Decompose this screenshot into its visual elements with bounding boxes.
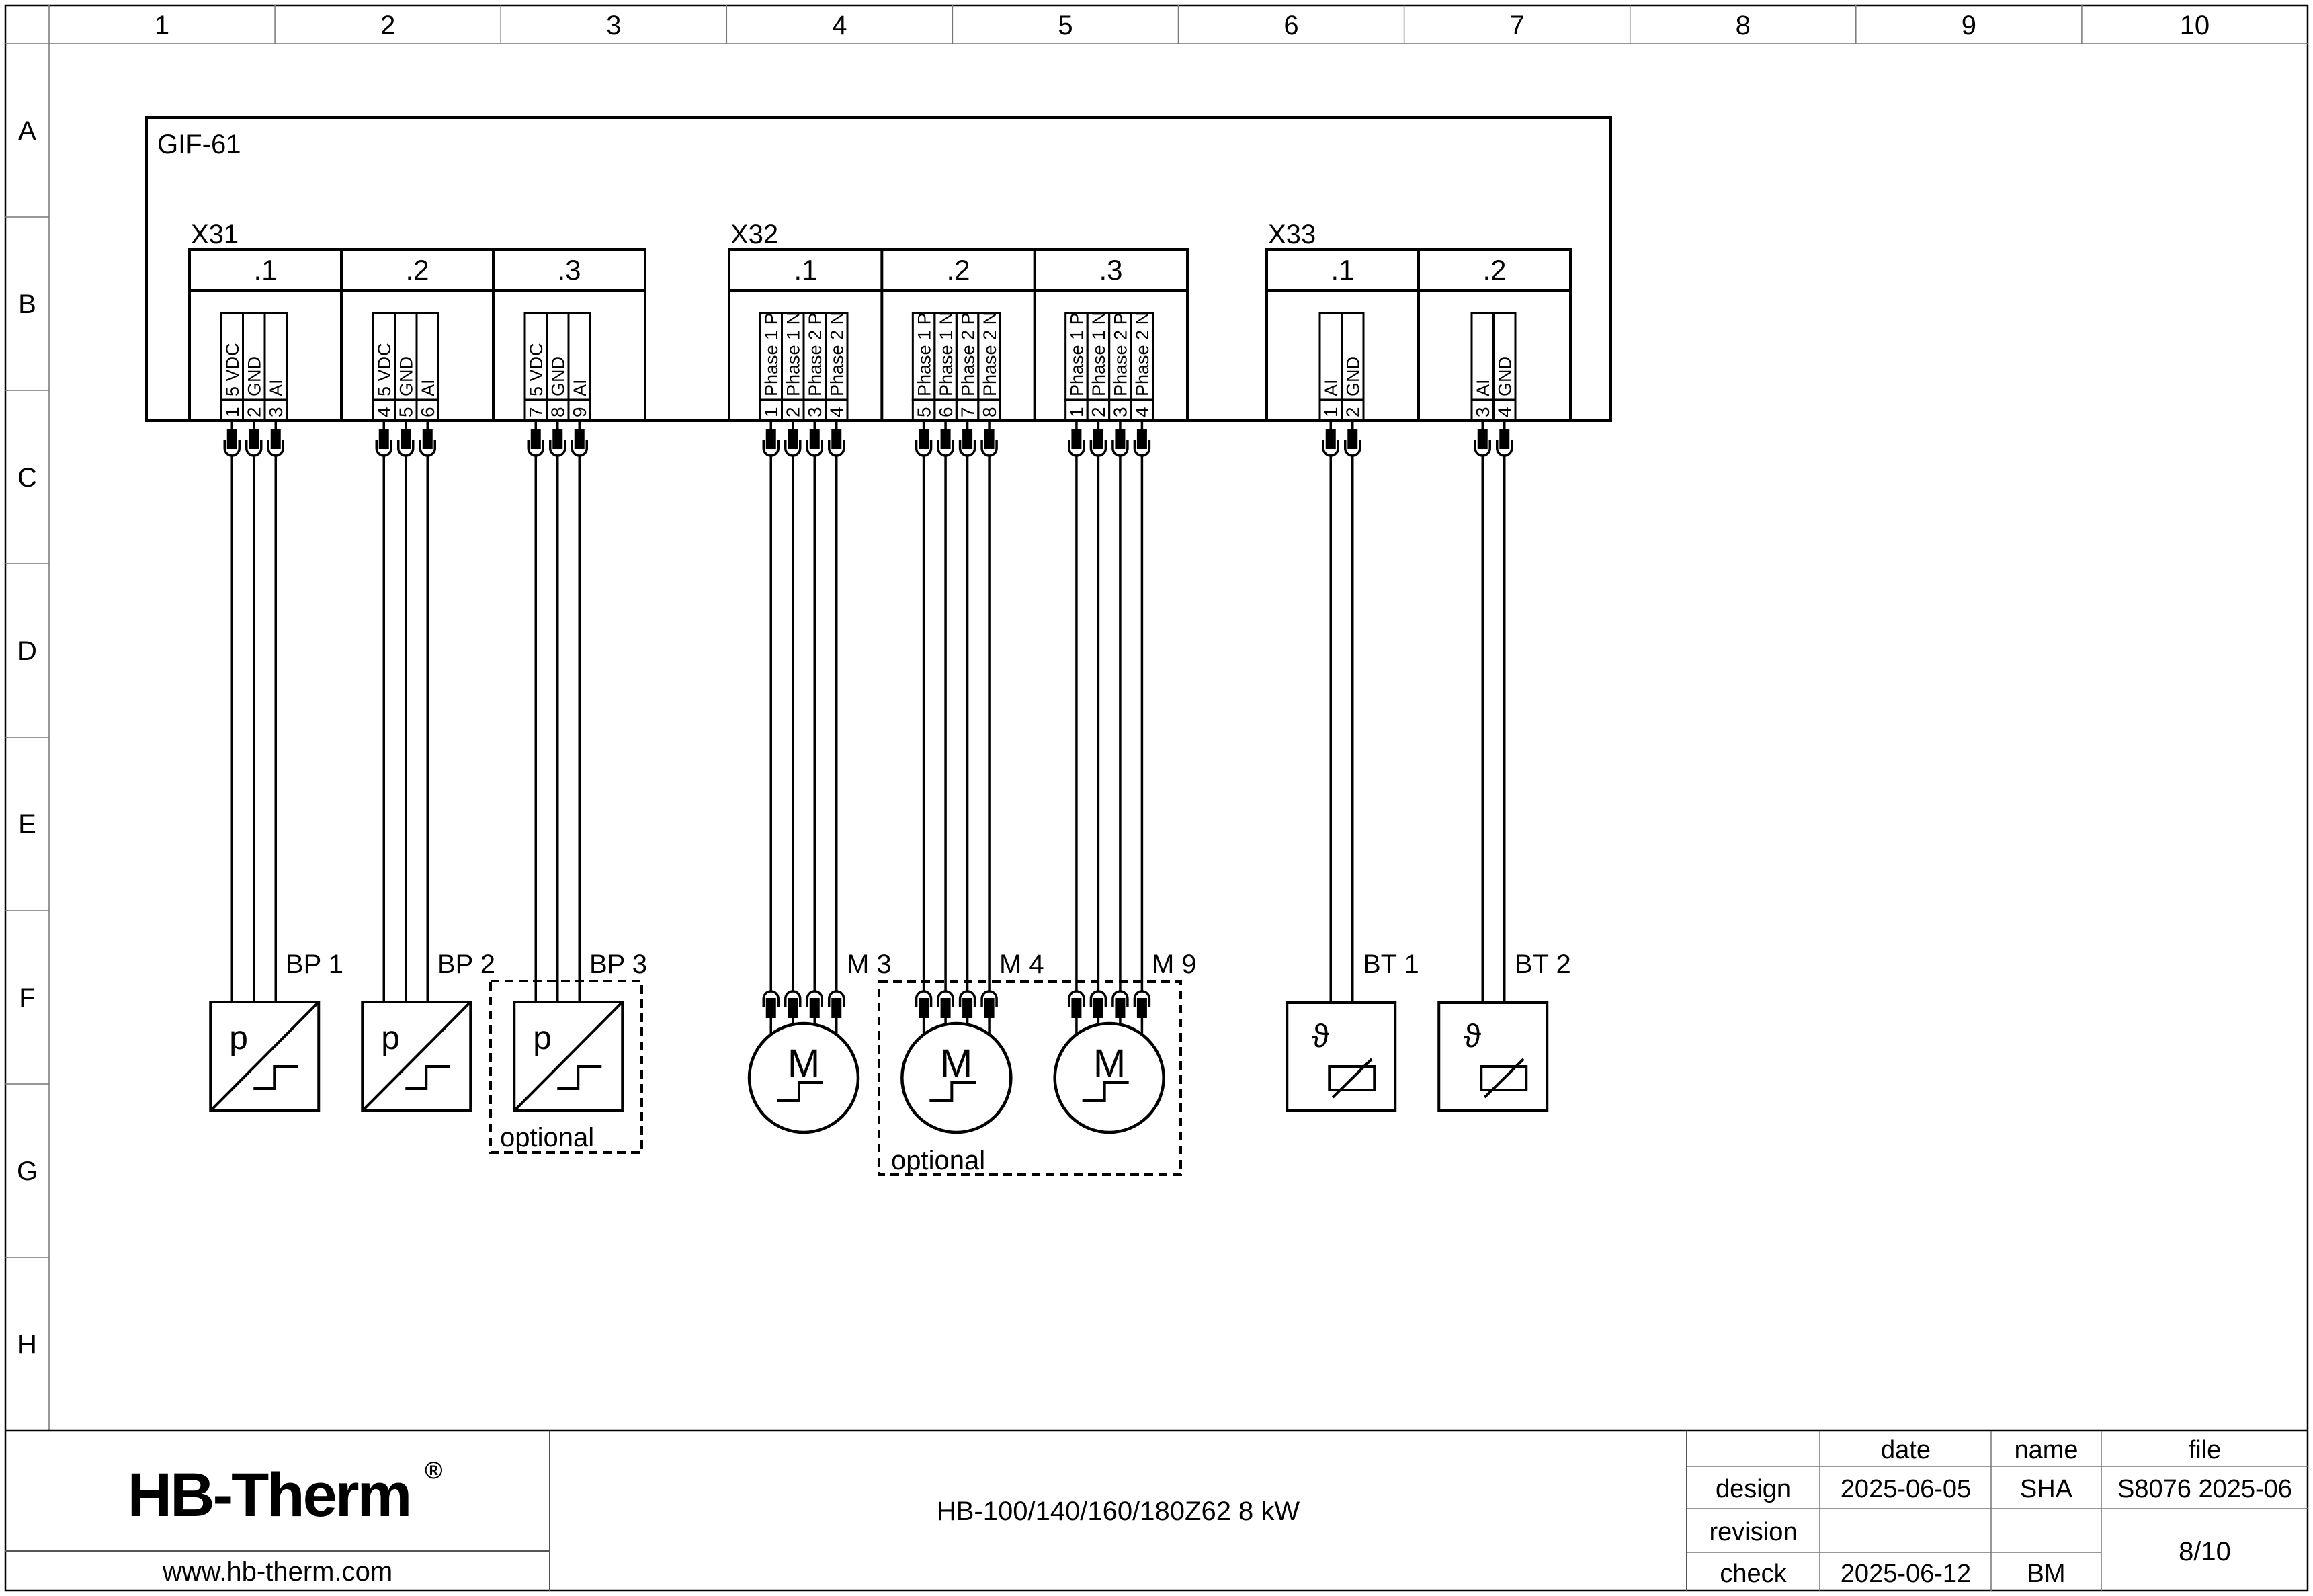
- pin-signal-label: GND: [396, 356, 417, 396]
- pin-number-label: 1: [1320, 407, 1341, 417]
- pin-number-label: 3: [1472, 407, 1493, 417]
- device-label-m4: M 4: [999, 950, 1044, 979]
- tb-row-check-label: check: [1720, 1560, 1787, 1588]
- grid-row-label: D: [17, 636, 37, 666]
- pin-signal-label: AI: [1473, 379, 1493, 396]
- tb-row-check-date: 2025-06-12: [1841, 1560, 1971, 1588]
- section-label-x31-3: .3: [557, 254, 581, 286]
- pin-signal-label: Phase 1 P: [914, 312, 934, 396]
- pin-signal-label: Phase 2 P: [958, 312, 978, 396]
- pin-signal-label: Phase 2 P: [1111, 312, 1131, 396]
- tb-row-design-date: 2025-06-05: [1841, 1475, 1971, 1503]
- motor-symbol-letter-m4: M: [940, 1042, 972, 1085]
- pin-signal-label: Phase 2 N: [827, 312, 847, 396]
- motor-symbol-letter-m3: M: [788, 1042, 820, 1085]
- grid-column-label: 2: [380, 11, 395, 40]
- plug-pin: [964, 430, 971, 448]
- pin-number-label: 4: [1132, 407, 1152, 417]
- pin-number-label: 4: [1495, 407, 1515, 417]
- optional-label-motors: optional: [891, 1146, 985, 1175]
- grid-column-label: 4: [832, 11, 847, 40]
- device-label-m9: M 9: [1152, 950, 1197, 979]
- pin-signal-label: 5 VDC: [222, 343, 243, 396]
- pin-number-label: 2: [1343, 407, 1363, 417]
- plug-pin: [789, 430, 796, 448]
- plug-pin: [811, 999, 818, 1017]
- pin-signal-label: Phase 1 N: [784, 312, 804, 396]
- enclosure-box: [146, 118, 1611, 421]
- pin-signal-label: Phase 1 P: [1067, 312, 1087, 396]
- pin-signal-label: GND: [1343, 356, 1363, 396]
- theta-symbol-letter-bt1: ϑ: [1312, 1019, 1329, 1054]
- grid-column-label: 8: [1736, 11, 1751, 40]
- grid-row-label: C: [17, 463, 37, 493]
- pin-signal-label: Phase 2 P: [805, 312, 825, 396]
- pressure-symbol-letter-bp1: p: [229, 1019, 248, 1056]
- section-label-x33-1: .1: [1331, 254, 1354, 286]
- pin-signal-label: AI: [266, 379, 286, 396]
- plug-pin: [1073, 430, 1080, 448]
- pin-signal-label: GND: [245, 356, 265, 396]
- plug-pin: [920, 999, 927, 1017]
- motor-symbol-letter-m9: M: [1093, 1042, 1126, 1085]
- grid-row-label: F: [19, 983, 35, 1013]
- optional-label-bp3: optional: [500, 1123, 594, 1152]
- registered-trademark-mark: ®: [425, 1456, 443, 1484]
- pin-number-label: 8: [979, 407, 1000, 417]
- pin-number-label: 5: [396, 407, 417, 417]
- plug-pin: [576, 430, 583, 448]
- plug-pin: [1116, 430, 1124, 448]
- section-label-x31-2: .2: [405, 254, 429, 286]
- pin-signal-label: AI: [418, 379, 438, 396]
- grid-column-label: 6: [1284, 11, 1298, 40]
- section-label-x31-1: .1: [253, 254, 277, 286]
- pin-number-label: 2: [244, 407, 265, 417]
- pressure-symbol-letter-bp2: p: [381, 1019, 400, 1056]
- grid-row-label: G: [17, 1157, 38, 1186]
- pin-number-label: 2: [783, 407, 804, 417]
- connector-x33-label: X33: [1268, 220, 1316, 249]
- pin-signal-label: GND: [1495, 356, 1515, 396]
- section-label-x32-3: .3: [1099, 254, 1122, 286]
- pin-number-label: 8: [548, 407, 569, 417]
- pin-number-label: 4: [827, 407, 847, 417]
- tb-sheet-number: 8/10: [2179, 1537, 2231, 1566]
- pin-number-label: 7: [957, 407, 978, 417]
- pressure-symbol-letter-bp3: p: [533, 1019, 552, 1056]
- company-website: www.hb-therm.com: [162, 1557, 392, 1587]
- grid-row-label: E: [18, 810, 36, 839]
- plug-pin: [228, 430, 236, 448]
- pin-signal-label: AI: [1321, 379, 1341, 396]
- grid-column-label: 5: [1058, 11, 1073, 40]
- device-label-bp2: BP 2: [437, 950, 495, 979]
- plug-pin: [767, 430, 775, 448]
- grid-row-label: B: [18, 290, 36, 319]
- grid-column-label: 10: [2180, 11, 2210, 40]
- schematic-canvas: 12345678910ABCDEFGH5 VDC1GND2AI35 VDC4GN…: [0, 0, 2313, 1596]
- plug-pin: [424, 430, 431, 448]
- plug-pin: [380, 430, 388, 448]
- pin-signal-label: 5 VDC: [526, 343, 546, 396]
- schematic-sheet: 12345678910ABCDEFGH5 VDC1GND2AI35 VDC4GN…: [0, 0, 2313, 1596]
- diagram-linework: 12345678910ABCDEFGH5 VDC1GND2AI35 VDC4GN…: [5, 5, 2308, 1591]
- tb-row-check-name: BM: [2027, 1560, 2066, 1588]
- pin-signal-label: Phase 1 N: [936, 312, 956, 396]
- pin-signal-label: Phase 2 N: [980, 312, 1000, 396]
- plug-pin: [250, 430, 257, 448]
- company-logo: HB-Therm: [128, 1461, 411, 1529]
- temperature-sensor-box: [1439, 1003, 1547, 1111]
- plug-pin: [1479, 430, 1486, 448]
- pin-number-label: 3: [1110, 407, 1131, 417]
- pin-number-label: 6: [935, 407, 956, 417]
- pin-signal-label: Phase 2 N: [1132, 312, 1152, 396]
- device-label-bp3: BP 3: [589, 950, 647, 979]
- enclosure-label: GIF-61: [157, 130, 241, 159]
- pin-signal-label: AI: [570, 379, 590, 396]
- plug-pin: [767, 999, 775, 1017]
- tb-header-file: file: [2189, 1436, 2222, 1464]
- connector-x32-label: X32: [730, 220, 778, 249]
- plug-pin: [789, 999, 796, 1017]
- grid-row-label: H: [17, 1330, 37, 1359]
- plug-pin: [833, 430, 840, 448]
- plug-pin: [833, 999, 840, 1017]
- plug-pin: [554, 430, 561, 448]
- plug-pin: [1501, 430, 1508, 448]
- plug-pin: [1073, 999, 1080, 1017]
- pin-signal-label: GND: [548, 356, 569, 396]
- section-label-x33-2: .2: [1482, 254, 1506, 286]
- plug-pin: [532, 430, 540, 448]
- plug-pin: [811, 430, 818, 448]
- connector-x31-label: X31: [191, 220, 239, 249]
- pin-signal-label: Phase 1 N: [1089, 312, 1109, 396]
- plug-pin: [920, 430, 927, 448]
- plug-pin: [964, 999, 971, 1017]
- plug-pin: [1095, 430, 1102, 448]
- grid-column-label: 3: [606, 11, 621, 40]
- plug-pin: [942, 999, 950, 1017]
- grid-column-label: 9: [1962, 11, 1976, 40]
- pin-number-label: 5: [913, 407, 934, 417]
- pin-number-label: 7: [525, 407, 546, 417]
- pin-number-label: 4: [374, 407, 394, 417]
- section-label-x32-1: .1: [794, 254, 817, 286]
- device-label-m3: M 3: [847, 950, 892, 979]
- temperature-sensor-box: [1287, 1003, 1395, 1111]
- tb-header-name: name: [2014, 1436, 2078, 1464]
- tb-row-design-label: design: [1716, 1475, 1791, 1503]
- plug-pin: [986, 430, 993, 448]
- grid-row-label: A: [18, 116, 36, 146]
- plug-pin: [272, 430, 280, 448]
- theta-symbol-letter-bt2: ϑ: [1464, 1019, 1481, 1054]
- pin-number-label: 1: [761, 407, 782, 417]
- grid-column-label: 1: [155, 11, 169, 40]
- plug-pin: [1138, 999, 1146, 1017]
- pin-number-label: 3: [265, 407, 286, 417]
- pin-number-label: 3: [804, 407, 825, 417]
- tb-row-design-file: S8076 2025-06: [2117, 1475, 2292, 1503]
- plug-pin: [1327, 430, 1335, 448]
- device-label-bt1: BT 1: [1363, 950, 1419, 979]
- pin-number-label: 1: [1066, 407, 1087, 417]
- tb-header-date: date: [1881, 1436, 1931, 1464]
- section-label-x32-2: .2: [946, 254, 970, 286]
- plug-pin: [1095, 999, 1102, 1017]
- sheet-border: [5, 5, 2308, 1591]
- pin-signal-label: 5 VDC: [374, 343, 394, 396]
- plug-pin: [402, 430, 409, 448]
- plug-pin: [1116, 999, 1124, 1017]
- device-label-bp1: BP 1: [286, 950, 343, 979]
- plug-pin: [986, 999, 993, 1017]
- pin-number-label: 1: [222, 407, 243, 417]
- pin-signal-label: Phase 1 P: [761, 312, 782, 396]
- drawing-title: HB-100/140/160/180Z62 8 kW: [937, 1497, 1300, 1526]
- grid-column-label: 7: [1510, 11, 1525, 40]
- tb-row-revision-label: revision: [1710, 1518, 1798, 1546]
- plug-pin: [1138, 430, 1146, 448]
- pin-number-label: 6: [417, 407, 438, 417]
- plug-pin: [942, 430, 950, 448]
- plug-pin: [1349, 430, 1356, 448]
- device-label-bt2: BT 2: [1515, 950, 1571, 979]
- pin-number-label: 2: [1088, 407, 1109, 417]
- tb-row-design-name: SHA: [2020, 1475, 2073, 1503]
- pin-number-label: 9: [569, 407, 590, 417]
